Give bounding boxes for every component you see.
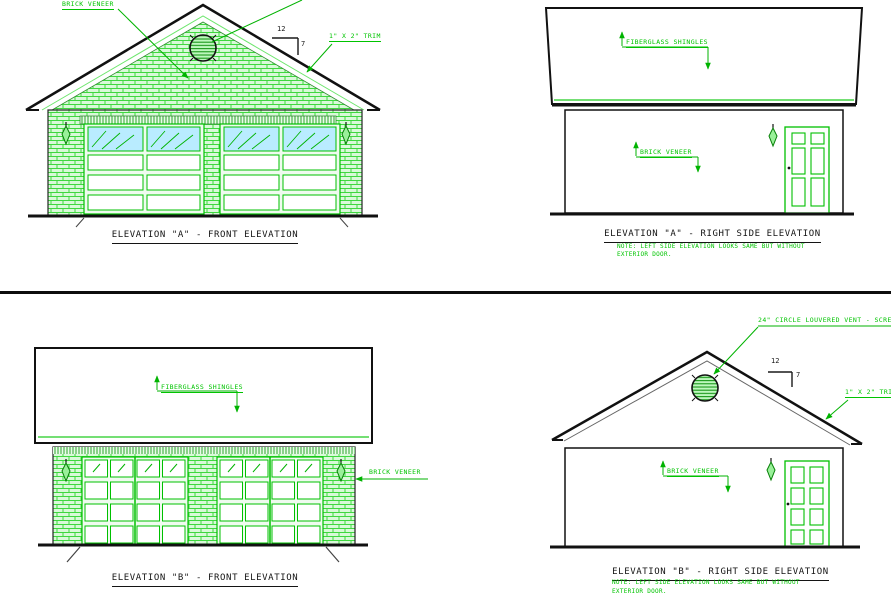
b-side-pitch-run: 12 (771, 358, 779, 365)
elevation-b-front-drawing (0, 300, 430, 593)
b-front-title: ELEVATION "B" - FRONT ELEVATION (112, 573, 299, 587)
a-front-title: ELEVATION "A" - FRONT ELEVATION (112, 230, 299, 244)
a-side-note-line1: NOTE: LEFT SIDE ELEVATION LOOKS SAME BUT… (617, 243, 805, 251)
roof-plane (546, 8, 862, 106)
b-side-title-box: ELEVATION "B" - RIGHT SIDE ELEVATION (598, 559, 843, 581)
a-side-brick-veneer-label: BRICK VENEER (640, 149, 692, 158)
a-side-title: ELEVATION "A" - RIGHT SIDE ELEVATION (604, 229, 821, 243)
a-front-title-box: ELEVATION "A" - FRONT ELEVATION (70, 222, 340, 244)
a-side-title-box: ELEVATION "A" - RIGHT SIDE ELEVATION (590, 221, 835, 243)
a-side-shingles-label: FIBERGLASS SHINGLES (626, 39, 708, 48)
b-front-shingles-label: FIBERGLASS SHINGLES (161, 384, 243, 393)
gable-vent (692, 375, 718, 401)
b-side-brick-veneer-label: BRICK VENEER (667, 468, 719, 477)
garage-door-right (217, 457, 323, 545)
garage-door-left (82, 457, 188, 545)
elevation-a-side-drawing (530, 0, 891, 296)
roof-band (35, 348, 372, 443)
garage-door-left (84, 124, 204, 214)
entry-door (785, 461, 829, 547)
elevation-sheet: BRICK VENEER 12 7 1" X 2" TRIM ELEVATION… (0, 0, 891, 593)
b-side-vent-label: 24" CIRCLE LOUVERED VENT - SCREEN (758, 317, 891, 324)
a-side-note-line2: EXTERIOR DOOR. (617, 251, 672, 259)
elevation-a-front-drawing (0, 0, 430, 296)
door-header-band (80, 116, 336, 124)
b-side-pitch-rise: 7 (796, 372, 800, 379)
entry-door (785, 127, 829, 213)
b-front-brick-veneer-label: BRICK VENEER (369, 469, 421, 476)
b-side-note-line2: EXTERIOR DOOR. (612, 588, 667, 593)
a-front-pitch-run: 12 (277, 26, 285, 33)
garage-door-right (220, 124, 340, 214)
b-side-note-line1: NOTE: LEFT SIDE ELEVATION LOOKS SAME BUT… (612, 579, 800, 587)
a-front-brick-veneer-label: BRICK VENEER (62, 1, 114, 10)
sheet-divider-line (0, 291, 891, 294)
elevation-b-side-drawing (530, 300, 891, 593)
a-front-trim-label: 1" X 2" TRIM (329, 33, 381, 42)
grade-line (38, 545, 368, 562)
b-side-trim-label: 1" X 2" TRIM (845, 389, 891, 398)
b-front-title-box: ELEVATION "B" - FRONT ELEVATION (70, 565, 340, 587)
a-front-pitch-rise: 7 (301, 41, 305, 48)
